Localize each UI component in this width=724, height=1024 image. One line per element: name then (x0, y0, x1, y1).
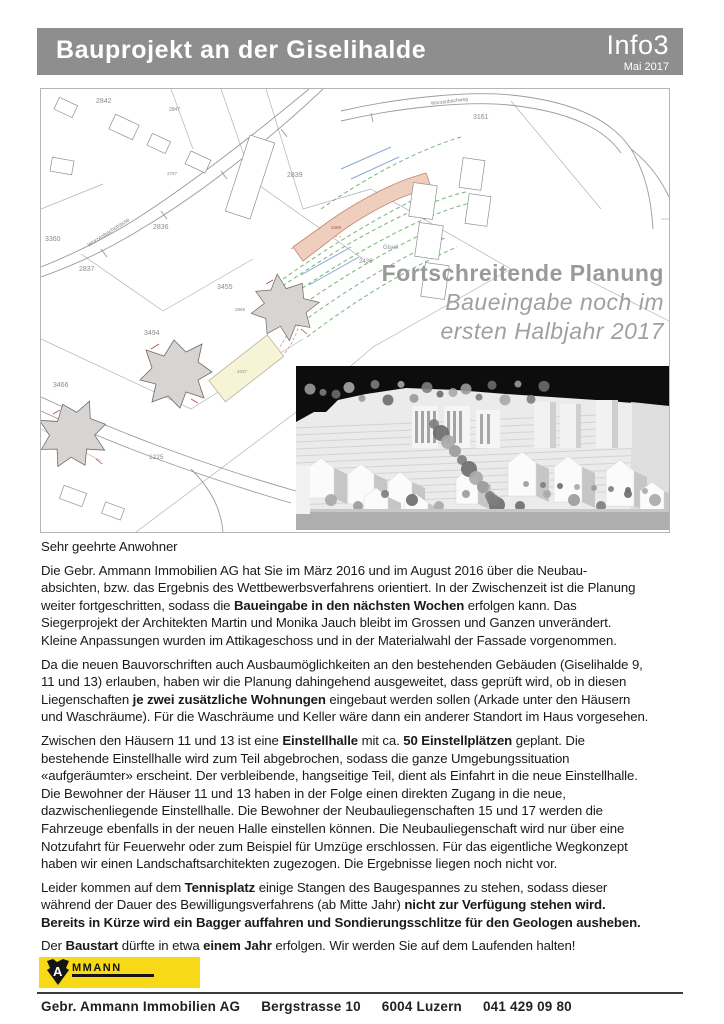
footer-phone: 041 429 09 80 (483, 999, 572, 1014)
overlay-headline: Fortschreitende Planung (382, 259, 664, 288)
issue-date: Mai 2017 (624, 61, 669, 73)
footer-company: Gebr. Ammann Immobilien AG (41, 999, 240, 1014)
map-label: Würzenbachstrasse (87, 217, 131, 249)
site-plan-map: 2842284731612839283633602837279734552436… (40, 88, 670, 533)
map-label: 3455 (217, 284, 233, 291)
map-overlay-text: Fortschreitende Planung Baueingabe noch … (382, 259, 664, 346)
map-label: 2436 (359, 259, 373, 265)
map-label: 3360 (45, 236, 61, 243)
footer: Gebr. Ammann Immobilien AG Bergstrasse 1… (41, 999, 572, 1014)
header-bar: Bauprojekt an der Giselihalde Info3 Mai … (37, 28, 683, 75)
greeting: Sehr geehrte Anwohner (41, 538, 673, 556)
body-paragraph: Die Gebr. Ammann Immobilien AG hat Sie i… (41, 562, 673, 650)
overlay-subline-2: ersten Halbjahr 2017 (382, 317, 664, 346)
issue-number: Info3 (606, 30, 669, 61)
map-label: 2847 (169, 107, 180, 113)
footer-rule (37, 992, 683, 994)
map-label: 3494 (144, 330, 160, 337)
map-label: 4037 (237, 369, 248, 374)
newsletter-page: Bauprojekt an der Giselihalde Info3 Mai … (0, 0, 724, 1024)
footer-city: 6004 Luzern (382, 999, 462, 1014)
map-label: 2842 (96, 98, 112, 105)
letter-body: Sehr geehrte Anwohner Die Gebr. Ammann I… (41, 538, 673, 961)
body-paragraph: Zwischen den Häusern 11 und 13 ist eine … (41, 732, 673, 873)
map-label: 2797 (167, 171, 178, 176)
footer-street: Bergstrasse 10 (261, 999, 361, 1014)
page-title: Bauprojekt an der Giselihalde (56, 36, 426, 65)
map-label: 2839 (287, 172, 303, 179)
map-label: 2868 (235, 307, 246, 312)
map-label: 2836 (153, 224, 169, 231)
body-paragraph: Da die neuen Bauvorschriften auch Ausbau… (41, 656, 673, 726)
map-label: 3469 (331, 225, 342, 230)
map-label: 3161 (473, 114, 489, 121)
body-paragraph: Leider kommen auf dem Tennisplatz einige… (41, 879, 673, 932)
map-label: 1225 (149, 454, 164, 461)
existing-gray-houses (41, 264, 328, 475)
overlay-subline-1: Baueingabe noch im (382, 288, 664, 317)
logo-letter: A (53, 964, 63, 979)
map-label: Giseli (383, 245, 398, 251)
ammann-logo: A MMANN (39, 957, 200, 988)
map-label: 3466 (53, 382, 69, 389)
model-photo (296, 366, 669, 530)
logo-name: MMANN (72, 962, 122, 974)
map-label: 2837 (79, 266, 95, 273)
body-paragraph: Der Baustart dürfte in etwa einem Jahr e… (41, 937, 673, 955)
map-label: Würzenbachweg (431, 96, 469, 107)
planned-building-footprint (293, 173, 431, 261)
